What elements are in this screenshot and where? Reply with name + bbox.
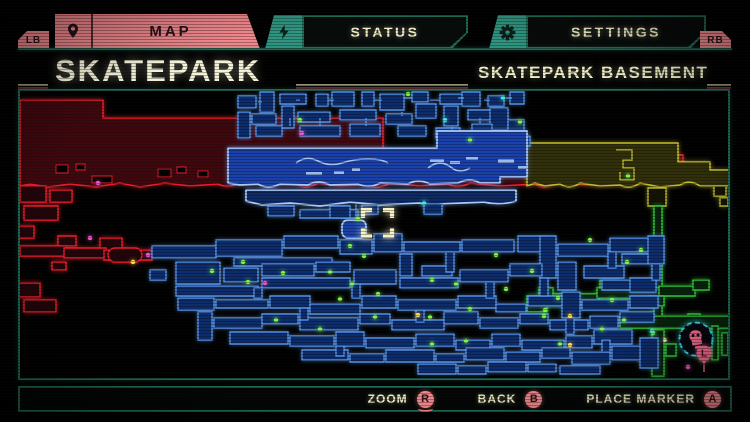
green-map-dot (350, 282, 354, 286)
green-map-dot (373, 315, 377, 319)
green-map-dot (588, 238, 592, 242)
green-map-dot (622, 318, 626, 322)
green-map-dot (468, 307, 472, 311)
green-map-dot (246, 280, 250, 284)
map-region-olive (527, 143, 730, 220)
green-map-dot (376, 292, 380, 296)
letter-marker-label: L (701, 349, 707, 360)
magenta-map-dot (88, 236, 92, 240)
green-map-dot (328, 270, 332, 274)
green-map-dot (543, 308, 547, 312)
green-map-dot (558, 342, 562, 346)
magenta-map-dot (96, 181, 100, 185)
map-canvas[interactable]: L (0, 0, 750, 422)
green-map-dot (530, 269, 534, 273)
cream-map-dot (663, 338, 667, 342)
green-map-dot (298, 118, 302, 122)
magenta-map-dot (263, 281, 267, 285)
map-lower-maze-blue (150, 234, 664, 374)
green-map-dot (454, 282, 458, 286)
cyan-map-dot (501, 96, 505, 100)
green-map-dot (362, 254, 366, 258)
cyan-map-dot (422, 201, 426, 205)
green-map-dot (625, 260, 629, 264)
letter-marker-l[interactable]: L (697, 346, 712, 373)
cyan-map-dot (650, 329, 654, 333)
green-map-dot (318, 327, 322, 331)
green-map-dot (626, 174, 630, 178)
green-map-dot (464, 339, 468, 343)
green-map-dot (504, 287, 508, 291)
green-map-dot (210, 269, 214, 273)
yellow-map-dot (131, 260, 135, 264)
green-map-dot (348, 244, 352, 248)
map-region-blue-band (228, 131, 527, 248)
yellow-map-dot (568, 314, 572, 318)
yellow-map-dot (416, 313, 420, 317)
green-map-dot (494, 253, 498, 257)
green-map-dot (518, 120, 522, 124)
green-map-dot (338, 297, 342, 301)
magenta-map-dot (146, 253, 150, 257)
green-map-dot (406, 92, 410, 96)
green-map-dot (468, 138, 472, 142)
green-map-dot (281, 271, 285, 275)
green-map-dot (556, 296, 560, 300)
magenta-map-dot (300, 131, 304, 135)
cyan-map-dot (443, 118, 447, 122)
green-map-dot (241, 260, 245, 264)
green-map-dot (430, 342, 434, 346)
green-map-dot (610, 298, 614, 302)
green-map-dot (430, 278, 434, 282)
yellow-map-dot (568, 343, 572, 347)
magenta-map-dot (686, 365, 690, 369)
green-map-dot (428, 315, 432, 319)
map-corridors-red-southwest (18, 226, 152, 312)
green-map-dot (542, 314, 546, 318)
green-map-dot (600, 327, 604, 331)
green-map-dot (356, 217, 360, 221)
green-map-dot (639, 248, 643, 252)
green-map-dot (274, 318, 278, 322)
